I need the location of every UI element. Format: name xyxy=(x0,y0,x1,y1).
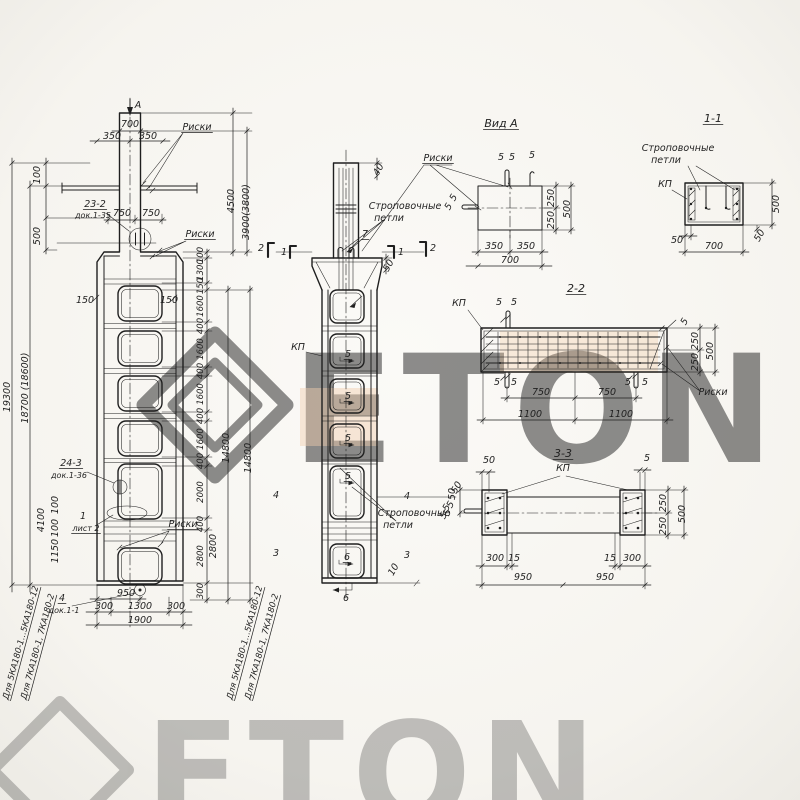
svg-text:750: 750 xyxy=(598,387,616,398)
svg-text:петли: петли xyxy=(383,520,413,531)
dim-label: 50 xyxy=(483,455,495,466)
watermark-text: ETON xyxy=(145,693,604,800)
kp-label: КП xyxy=(658,179,672,190)
svg-text:250: 250 xyxy=(658,517,669,535)
dim-label: 5 xyxy=(511,297,517,308)
svg-text:23-2: 23-2 xyxy=(84,199,106,210)
svg-text:Риски: Риски xyxy=(182,122,211,133)
dim-label: 5 xyxy=(642,377,648,388)
svg-text:6: 6 xyxy=(343,593,349,604)
section-flag-3: 3 xyxy=(273,548,279,559)
column-working-drawing: ETON ETON xyxy=(0,0,800,800)
dim-label: 300 xyxy=(167,601,185,612)
dim-label: 100 xyxy=(50,519,61,537)
dim-label: 5 xyxy=(344,433,352,444)
svg-text:150: 150 xyxy=(196,278,206,294)
svg-text:100: 100 xyxy=(50,519,61,537)
svg-text:6: 6 xyxy=(344,552,350,563)
svg-text:4: 4 xyxy=(273,490,279,501)
dim-label: 5 xyxy=(496,297,502,308)
dim-label: 500 xyxy=(705,342,716,360)
dim-label: 1600 xyxy=(196,338,206,360)
svg-text:5: 5 xyxy=(494,377,500,388)
dim-label: 300 xyxy=(486,553,504,564)
dim-label: 5 xyxy=(625,377,631,388)
svg-text:500: 500 xyxy=(32,227,43,245)
dim-label: 350 xyxy=(517,241,535,252)
svg-text:5: 5 xyxy=(642,377,648,388)
dim-label: 2800 xyxy=(208,534,219,558)
svg-text:14800: 14800 xyxy=(221,433,232,463)
svg-text:1300: 1300 xyxy=(196,259,206,281)
svg-text:300: 300 xyxy=(95,601,113,612)
dim-label: 5 xyxy=(509,152,515,163)
section-flag-2: 2 xyxy=(258,243,264,254)
dim-label: 250 xyxy=(546,189,557,207)
svg-text:950: 950 xyxy=(596,572,614,583)
dim-label: 750 xyxy=(532,387,550,398)
risks-label-view-a: Риски xyxy=(422,153,453,164)
svg-text:КП: КП xyxy=(658,179,672,190)
svg-text:250: 250 xyxy=(690,332,701,350)
svg-text:950: 950 xyxy=(514,572,532,583)
section-flag-2: 2 xyxy=(430,243,436,254)
lifting-loops-label-1-1: Строповочные xyxy=(642,143,715,154)
dim-label: 400 xyxy=(196,408,206,424)
dim-label: 2000 xyxy=(196,481,206,503)
svg-text:250: 250 xyxy=(546,189,557,207)
svg-text:5: 5 xyxy=(498,152,504,163)
dim-label: 100 xyxy=(32,166,43,184)
section-flag-1: 1 xyxy=(281,247,287,258)
dim-label: 750 xyxy=(142,208,160,219)
section-2-2-title: 2-2 xyxy=(566,282,586,295)
dim-label: 1150 xyxy=(50,539,61,563)
svg-text:300: 300 xyxy=(486,553,504,564)
svg-text:350: 350 xyxy=(517,241,535,252)
section-flag-3: 3 xyxy=(404,550,410,561)
svg-text:700: 700 xyxy=(501,255,519,266)
dim-label: 1600 xyxy=(196,428,206,450)
svg-text:5: 5 xyxy=(625,377,631,388)
svg-text:100: 100 xyxy=(50,496,61,514)
risks-label-top: Риски xyxy=(181,122,212,133)
section-3-3-title: 3-3 xyxy=(553,447,573,460)
svg-text:2800: 2800 xyxy=(208,534,219,558)
svg-text:250: 250 xyxy=(546,211,557,229)
dim-label: 150 xyxy=(76,295,94,306)
dim-label: 300 xyxy=(95,601,113,612)
section-flag-4: 4 xyxy=(273,490,279,501)
svg-text:5: 5 xyxy=(511,377,517,388)
dim-label: 15 xyxy=(604,553,616,564)
svg-text:4: 4 xyxy=(59,593,65,604)
dim-label: 19300 xyxy=(2,382,13,412)
svg-text:400: 400 xyxy=(196,408,206,424)
section-flag-1: 1 xyxy=(398,247,404,258)
svg-text:24-3: 24-3 xyxy=(60,458,82,469)
svg-text:700: 700 xyxy=(121,119,139,130)
dim-label: петли xyxy=(383,520,413,531)
risks-label-2-2: Риски xyxy=(698,387,727,398)
dim-label: 100 xyxy=(50,496,61,514)
dim-label: 4100 xyxy=(36,508,47,532)
dim-label: 300 xyxy=(196,583,206,599)
svg-text:док.1-36: док.1-36 xyxy=(50,471,87,480)
svg-text:Вид А: Вид А xyxy=(484,117,517,130)
dim-label: 1900 xyxy=(128,615,152,626)
dim-label: 150 xyxy=(160,295,178,306)
svg-text:7: 7 xyxy=(362,229,368,240)
svg-text:1300: 1300 xyxy=(128,601,152,612)
dim-label: лист 2 xyxy=(71,524,100,534)
svg-text:3-3: 3-3 xyxy=(554,447,572,460)
svg-text:150: 150 xyxy=(160,295,178,306)
dim-label: 5 xyxy=(494,377,500,388)
mark-4: 4 xyxy=(58,593,66,604)
svg-text:1: 1 xyxy=(398,247,404,258)
svg-text:4500: 4500 xyxy=(226,189,237,213)
kp-label: КП xyxy=(556,463,570,474)
lifting-loops-label-top: Строповочные xyxy=(369,201,442,212)
dim-label: 14800 xyxy=(221,433,232,463)
section-flag-4: 4 xyxy=(404,491,410,502)
dim-label: док.1-35 xyxy=(74,211,111,220)
dim-label: 750 xyxy=(598,387,616,398)
svg-text:3900(3800): 3900(3800) xyxy=(241,184,252,240)
dim-label: 14800 xyxy=(243,443,254,473)
blueprint-page: ETON ETON xyxy=(0,0,800,800)
svg-text:250: 250 xyxy=(658,494,669,512)
dim-label: 250 xyxy=(690,332,701,350)
svg-text:18700 (18600): 18700 (18600) xyxy=(20,353,31,424)
kp-label: КП xyxy=(452,298,466,309)
dim-label: 950 xyxy=(514,572,532,583)
dim-label: 5 xyxy=(498,152,504,163)
watermark-accent xyxy=(300,388,378,446)
dim-label: 5 xyxy=(344,471,352,482)
svg-text:750: 750 xyxy=(142,208,160,219)
dim-label: 1600 xyxy=(196,295,206,317)
view-a-direction-label: А xyxy=(134,100,142,111)
dim-label: петли xyxy=(651,155,681,166)
dim-label: 5 xyxy=(344,349,352,360)
dim-label: 5 xyxy=(511,377,517,388)
svg-text:5: 5 xyxy=(496,297,502,308)
dim-label: 50 xyxy=(447,488,458,500)
dim-label: док.1-36 xyxy=(50,471,87,480)
svg-text:15: 15 xyxy=(508,553,520,564)
dim-label: 50 xyxy=(671,235,683,246)
dim-label: 400 xyxy=(196,453,206,469)
risks-label-bottom: Риски xyxy=(167,519,198,530)
svg-text:5: 5 xyxy=(529,150,535,161)
dim-label: 500 xyxy=(32,227,43,245)
svg-text:5: 5 xyxy=(345,433,351,444)
svg-text:350: 350 xyxy=(485,241,503,252)
svg-text:14800: 14800 xyxy=(243,443,254,473)
svg-text:Строповочные: Строповочные xyxy=(642,143,715,154)
dim-label: 1100 xyxy=(518,409,542,420)
dim-label: 1300 xyxy=(128,601,152,612)
svg-text:1600: 1600 xyxy=(196,338,206,360)
svg-text:700: 700 xyxy=(705,241,723,252)
svg-text:Риски: Риски xyxy=(698,387,727,398)
svg-text:2800: 2800 xyxy=(196,545,206,567)
dim-label: 250 xyxy=(658,517,669,535)
dim-label: 700 xyxy=(501,255,519,266)
svg-text:5: 5 xyxy=(511,297,517,308)
svg-text:1: 1 xyxy=(281,247,287,258)
mark-24-3: 24-3 xyxy=(59,458,83,469)
dim-label: 700 xyxy=(705,241,723,252)
svg-text:750: 750 xyxy=(113,208,131,219)
dim-label: 350 xyxy=(485,241,503,252)
svg-text:50: 50 xyxy=(483,455,495,466)
svg-text:док.1-35: док.1-35 xyxy=(74,211,111,220)
svg-text:3: 3 xyxy=(404,550,410,561)
dim-label: 750 xyxy=(113,208,131,219)
svg-text:400: 400 xyxy=(196,516,206,532)
svg-text:400: 400 xyxy=(196,363,206,379)
dim-label: 500 xyxy=(562,200,573,218)
svg-text:300: 300 xyxy=(196,583,206,599)
svg-text:КП: КП xyxy=(291,342,305,353)
svg-text:5: 5 xyxy=(644,453,650,464)
svg-text:2: 2 xyxy=(430,243,436,254)
svg-text:петли: петли xyxy=(651,155,681,166)
view-a-title: Вид А xyxy=(483,117,518,130)
svg-text:5: 5 xyxy=(509,152,515,163)
mark-6: 6 xyxy=(343,593,349,604)
svg-text:2: 2 xyxy=(258,243,264,254)
dim-label: 5 xyxy=(344,391,352,402)
dim-label: 1100 xyxy=(609,409,633,420)
dim-label: 15 xyxy=(508,553,520,564)
svg-text:Строповочные: Строповочные xyxy=(369,201,442,212)
dim-label: 500 xyxy=(677,505,688,523)
dim-label: 18700 (18600) xyxy=(20,353,31,424)
mark-23-2: 23-2 xyxy=(83,199,107,210)
svg-text:лист 2: лист 2 xyxy=(71,524,99,533)
dim-label: 3900(3800) xyxy=(241,184,252,240)
svg-text:5: 5 xyxy=(345,471,351,482)
svg-text:1-1: 1-1 xyxy=(704,112,722,125)
svg-text:1600: 1600 xyxy=(196,383,206,405)
dim-label: 250 xyxy=(658,494,669,512)
dim-label: 2800 xyxy=(196,545,206,567)
dim-label: петли xyxy=(374,213,404,224)
dim-label: 950 xyxy=(596,572,614,583)
svg-text:50: 50 xyxy=(447,488,458,500)
svg-text:2-2: 2-2 xyxy=(567,282,585,295)
dim-label: 950 xyxy=(117,588,135,599)
svg-text:500: 500 xyxy=(771,195,782,213)
dim-label: 5 xyxy=(644,453,650,464)
dim-label: 350 xyxy=(139,131,157,142)
svg-text:19300: 19300 xyxy=(2,382,13,412)
svg-text:500: 500 xyxy=(677,505,688,523)
svg-text:Риски: Риски xyxy=(168,519,197,530)
svg-text:А: А xyxy=(134,100,142,111)
svg-text:400: 400 xyxy=(196,453,206,469)
section-1-1-title: 1-1 xyxy=(703,112,723,125)
dim-label: 300 xyxy=(623,553,641,564)
svg-text:250: 250 xyxy=(690,353,701,371)
dim-label: 500 xyxy=(771,195,782,213)
mark-7: 7 xyxy=(361,229,369,240)
svg-text:500: 500 xyxy=(562,200,573,218)
svg-text:1100: 1100 xyxy=(609,409,633,420)
dim-label: 700 xyxy=(121,119,139,130)
svg-text:1600: 1600 xyxy=(196,428,206,450)
svg-text:1: 1 xyxy=(80,511,86,522)
svg-text:1600: 1600 xyxy=(196,295,206,317)
svg-text:1100: 1100 xyxy=(518,409,542,420)
svg-text:4: 4 xyxy=(404,491,410,502)
svg-text:КП: КП xyxy=(556,463,570,474)
svg-text:300: 300 xyxy=(167,601,185,612)
mark-1: 1 xyxy=(80,511,86,522)
svg-text:5: 5 xyxy=(345,391,351,402)
dim-label: 250 xyxy=(690,353,701,371)
dim-label: 250 xyxy=(546,211,557,229)
svg-text:4100: 4100 xyxy=(36,508,47,532)
svg-text:петли: петли xyxy=(374,213,404,224)
svg-text:1150: 1150 xyxy=(50,539,61,563)
svg-text:950: 950 xyxy=(117,588,135,599)
dim-label: 6 xyxy=(343,552,351,563)
risks-label-mid: Риски xyxy=(184,229,215,240)
svg-text:2000: 2000 xyxy=(196,481,206,503)
dim-label: 1300 xyxy=(196,259,206,281)
svg-text:Риски: Риски xyxy=(423,153,452,164)
dim-label: 1600 xyxy=(196,383,206,405)
svg-text:100: 100 xyxy=(32,166,43,184)
kp-label: КП xyxy=(291,342,305,353)
svg-text:15: 15 xyxy=(604,553,616,564)
svg-text:350: 350 xyxy=(139,131,157,142)
svg-text:750: 750 xyxy=(532,387,550,398)
svg-text:150: 150 xyxy=(76,295,94,306)
dim-label: 400 xyxy=(196,516,206,532)
svg-text:Риски: Риски xyxy=(185,229,214,240)
svg-text:300: 300 xyxy=(623,553,641,564)
svg-text:400: 400 xyxy=(196,318,206,334)
svg-text:350: 350 xyxy=(103,131,121,142)
svg-text:5: 5 xyxy=(345,349,351,360)
svg-text:500: 500 xyxy=(705,342,716,360)
svg-text:КП: КП xyxy=(452,298,466,309)
svg-text:50: 50 xyxy=(671,235,683,246)
svg-text:3: 3 xyxy=(273,548,279,559)
dim-label: 400 xyxy=(196,363,206,379)
dim-label: 150 xyxy=(196,278,206,294)
dim-label: 350 xyxy=(103,131,121,142)
dim-label: 4500 xyxy=(226,189,237,213)
dim-label: 5 xyxy=(529,150,535,161)
dim-label: 400 xyxy=(196,318,206,334)
svg-text:1900: 1900 xyxy=(128,615,152,626)
